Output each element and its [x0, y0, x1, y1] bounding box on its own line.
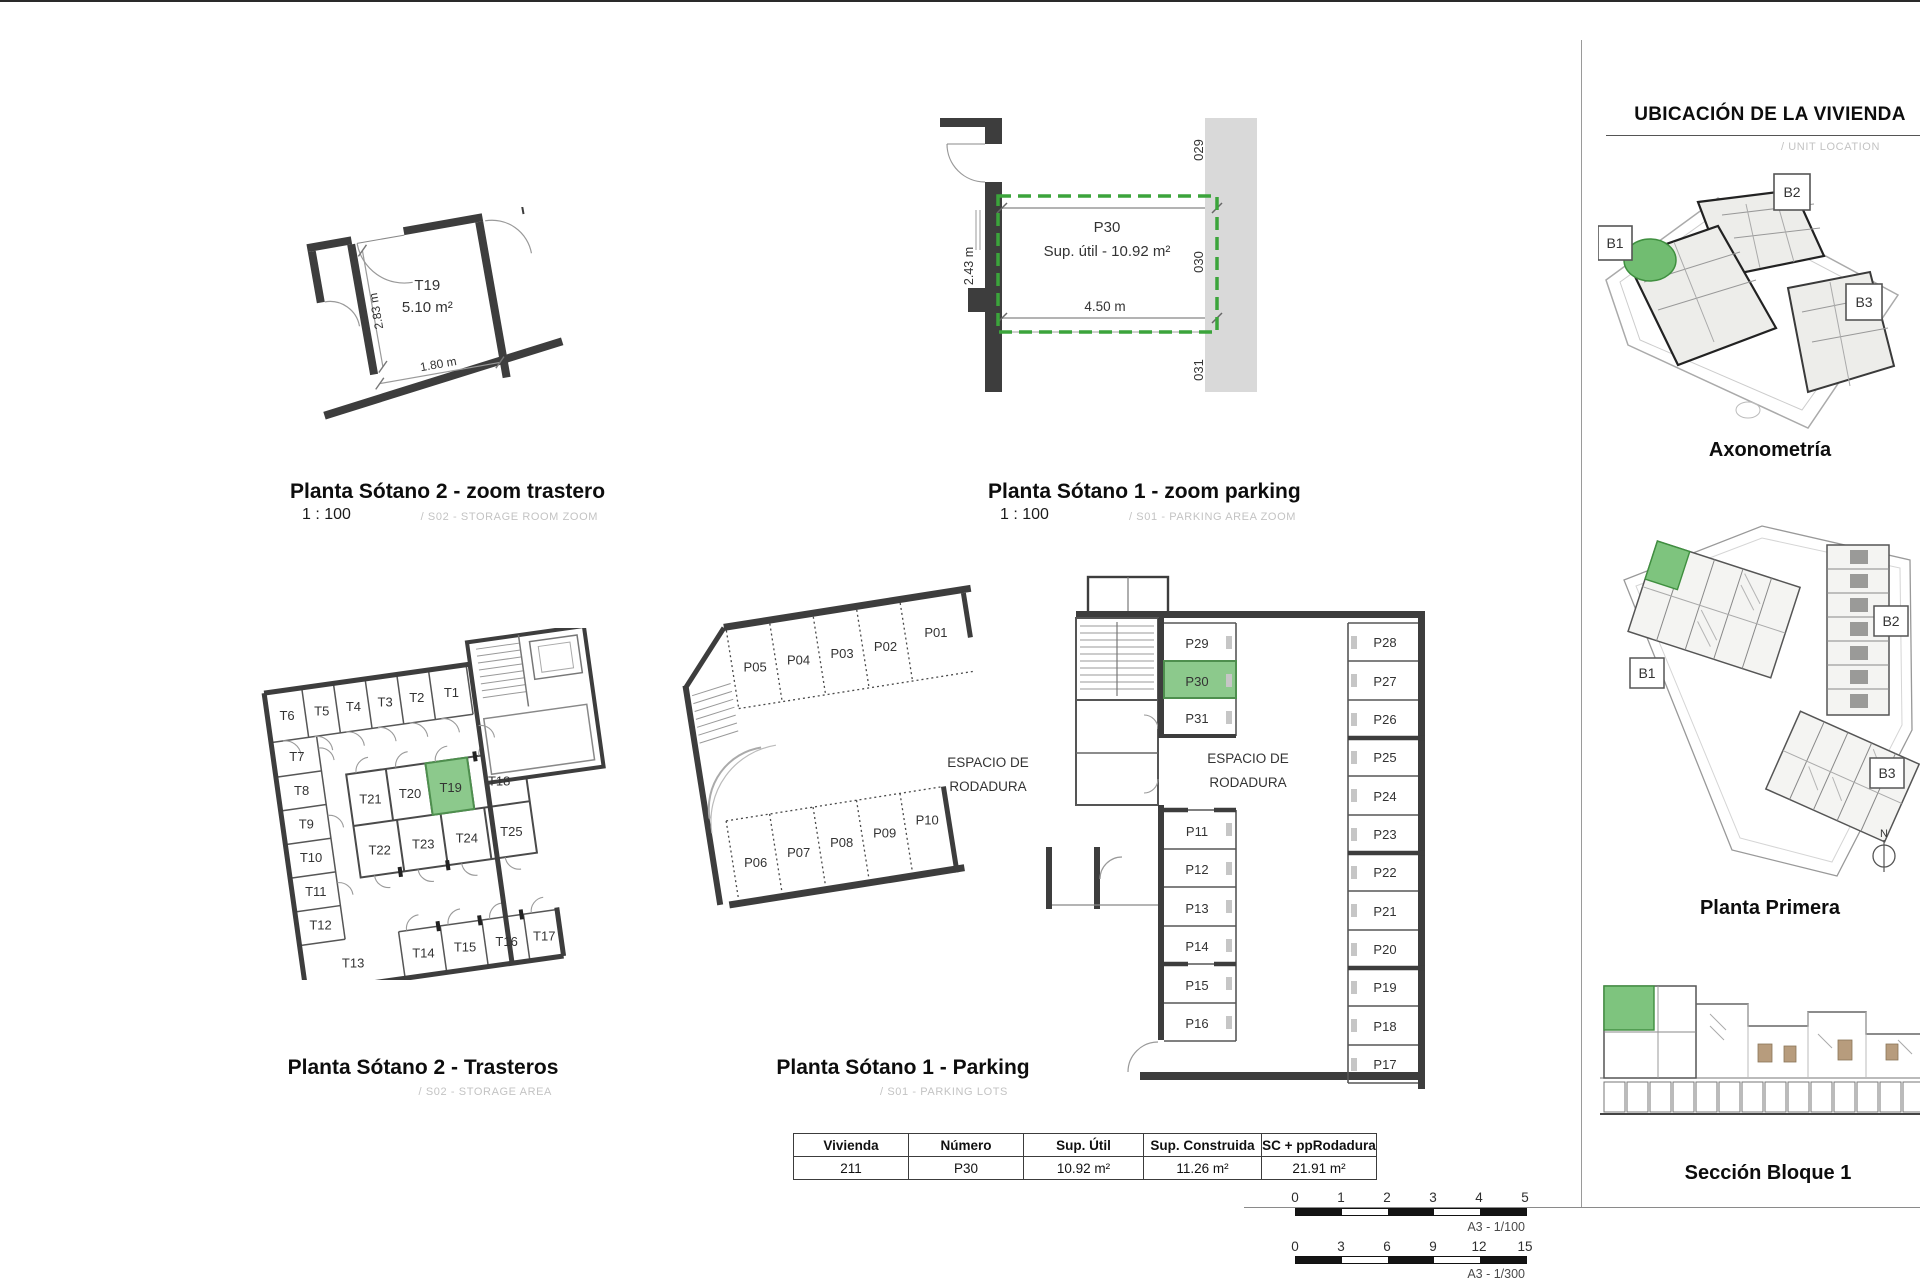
tick: 9	[1429, 1239, 1437, 1254]
storage-floorplan-drawing: T6 T5 T4 T3 T2 T1 T7 T8 T9 T10 T11 T12 T…	[248, 628, 648, 980]
parking-unit-area: Sup. útil - 10.92 m²	[1044, 243, 1171, 260]
section-drawing	[1598, 974, 1920, 1139]
svg-text:P20: P20	[1373, 942, 1396, 957]
svg-text:T11: T11	[305, 884, 326, 899]
header-underline	[1606, 135, 1920, 136]
parking-zoom-subtitle: / S01 - PARKING AREA ZOOM	[1129, 511, 1298, 524]
sidebar-header-sub: / UNIT LOCATION	[1620, 141, 1880, 153]
sidebar-divider	[1581, 40, 1582, 1208]
stair-hatch	[691, 684, 739, 744]
dim-height-label: 2.43 m	[962, 247, 976, 285]
svg-text:P22: P22	[1373, 865, 1396, 880]
svg-text:P01: P01	[924, 625, 947, 640]
svg-text:T12: T12	[309, 918, 331, 933]
col-header: SC + ppRodadura	[1262, 1134, 1377, 1157]
col-header: Número	[909, 1134, 1024, 1157]
storage-floorplan: T6 T5 T4 T3 T2 T1 T7 T8 T9 T10 T11 T12 T…	[261, 628, 629, 980]
roadway-label-left2: RODADURA	[949, 779, 1026, 794]
scalebar-300-ticks: 0 3 6 9 12 15	[1295, 1239, 1535, 1253]
svg-text:P11: P11	[1186, 824, 1208, 839]
tick: 12	[1471, 1239, 1486, 1254]
parking-plan-titleblock: Planta Sótano 1 - Parking / S01 - PARKIN…	[750, 1056, 1056, 1098]
left-bay-labels: P05 P04 P03 P02 P01 P06 P07 P08 P09 P10	[711, 621, 981, 873]
unit-id: T19	[414, 277, 440, 294]
cell-sup-util: 10.92 m²	[1024, 1157, 1144, 1180]
tick: 1	[1337, 1190, 1345, 1205]
roadway-label-left: ESPACIO DE	[947, 755, 1029, 770]
svg-text:T23: T23	[412, 836, 434, 851]
tick: 6	[1383, 1239, 1391, 1254]
svg-text:T3: T3	[378, 694, 393, 709]
svg-text:P12: P12	[1185, 862, 1208, 877]
svg-text:T9: T9	[299, 817, 314, 832]
parking-right-wing: P29 P30 P31 P11 P12 P13 P14 P15 P16 P28 …	[1076, 577, 1425, 1089]
wheel-stops	[1226, 636, 1357, 1071]
svg-text:P29: P29	[1185, 636, 1208, 651]
dim-width-label: 4.50 m	[1084, 299, 1125, 314]
svg-text:P25: P25	[1373, 750, 1396, 765]
band-label: 030	[1191, 251, 1206, 273]
parking-zoom-titleblock: Planta Sótano 1 - zoom parking 1 : 100 /…	[988, 480, 1298, 524]
north-label: N	[1880, 828, 1888, 840]
storage-zoom-drawing: 2.83 m 1.80 m T19 5.10 m²	[300, 207, 630, 482]
highlighted-unit-section	[1604, 986, 1654, 1030]
axonometry-drawing: B1 B2 B3	[1598, 160, 1920, 460]
svg-text:T10: T10	[300, 850, 322, 865]
svg-text:T16: T16	[495, 934, 517, 949]
storage-zoom-title: Planta Sótano 2 - zoom trastero	[290, 480, 600, 504]
svg-text:T19: T19	[439, 780, 461, 795]
scalebar-100	[1295, 1208, 1527, 1216]
parking-plan-subtitle: / S01 - PARKING LOTS	[750, 1086, 1056, 1098]
cell-sup-construida: 11.26 m²	[1144, 1157, 1262, 1180]
svg-text:T22: T22	[368, 843, 390, 858]
scalebar-300	[1295, 1256, 1527, 1264]
parking-floorplan-drawing: P05 P04 P03 P02 P01 P06 P07 P08 P09 P10 …	[648, 547, 1438, 1105]
svg-text:T14: T14	[412, 946, 434, 961]
scalebar-100-ticks: 0 1 2 3 4 5	[1295, 1190, 1535, 1204]
storage-plan-title: Planta Sótano 2 - Trasteros	[268, 1056, 578, 1080]
svg-text:T25: T25	[500, 824, 522, 839]
band-label: 029	[1191, 139, 1206, 161]
svg-text:P31: P31	[1185, 711, 1208, 726]
roadway-label-right: ESPACIO DE	[1207, 751, 1289, 766]
svg-text:P18: P18	[1373, 1019, 1396, 1034]
svg-text:P27: P27	[1373, 674, 1396, 689]
svg-text:T24: T24	[456, 830, 478, 845]
cell-numero: P30	[909, 1157, 1024, 1180]
svg-text:P05: P05	[744, 660, 767, 675]
unit-area: 5.10 m²	[402, 299, 453, 316]
tick: 15	[1517, 1239, 1532, 1254]
table-header-row: Vivienda Número Sup. Útil Sup. Construid…	[794, 1134, 1377, 1157]
svg-text:P16: P16	[1185, 1016, 1208, 1031]
svg-text:T6: T6	[279, 708, 294, 723]
plan-label-b2: B2	[1882, 613, 1899, 629]
svg-text:T4: T4	[346, 699, 361, 714]
svg-text:T2: T2	[409, 690, 424, 705]
first-floor-caption: Planta Primera	[1620, 897, 1920, 920]
parking-zoom-title: Planta Sótano 1 - zoom parking	[988, 480, 1298, 504]
first-floor-drawing: B1 B2 B3 N	[1612, 520, 1920, 888]
storage-zoom-titleblock: Planta Sótano 2 - zoom trastero 1 : 100 …	[290, 480, 600, 524]
tick: 4	[1475, 1190, 1483, 1205]
tick: 0	[1291, 1190, 1299, 1205]
scalebar-300-note: A3 - 1/300	[1295, 1267, 1525, 1281]
block-label-b2: B2	[1783, 184, 1800, 200]
unit-summary-table: Vivienda Número Sup. Útil Sup. Construid…	[793, 1133, 1377, 1180]
svg-text:P21: P21	[1373, 904, 1396, 919]
svg-text:T17: T17	[533, 929, 555, 944]
tick: 5	[1521, 1190, 1529, 1205]
storage-zoom-scale: 1 : 100	[302, 506, 351, 524]
section-caption: Sección Bloque 1	[1618, 1162, 1918, 1185]
svg-text:T1: T1	[444, 685, 459, 700]
tick: 2	[1383, 1190, 1391, 1205]
svg-text:P17: P17	[1373, 1057, 1396, 1072]
svg-text:P15: P15	[1185, 978, 1208, 993]
scalebar-100-note: A3 - 1/100	[1295, 1220, 1525, 1234]
cell-vivienda: 211	[794, 1157, 909, 1180]
tick: 3	[1429, 1190, 1437, 1205]
svg-text:P28: P28	[1373, 635, 1396, 650]
basement-band	[1604, 1082, 1920, 1112]
svg-text:T13: T13	[342, 955, 364, 970]
svg-text:P08: P08	[830, 835, 853, 850]
roadway-label-right2: RODADURA	[1209, 775, 1286, 790]
svg-text:T20: T20	[399, 786, 421, 801]
section-building-profile	[1604, 986, 1920, 1078]
svg-text:P13: P13	[1185, 901, 1208, 916]
cell-sc-rodadura: 21.91 m²	[1262, 1157, 1377, 1180]
svg-text:T21: T21	[359, 791, 381, 806]
svg-text:P04: P04	[787, 653, 810, 668]
svg-text:P02: P02	[874, 639, 897, 654]
block-label-b3: B3	[1855, 294, 1872, 310]
svg-text:P10: P10	[916, 813, 939, 828]
svg-text:P09: P09	[873, 825, 896, 840]
parking-plan-title: Planta Sótano 1 - Parking	[750, 1056, 1056, 1080]
svg-text:P23: P23	[1373, 827, 1396, 842]
svg-text:P14: P14	[1185, 939, 1208, 954]
svg-text:T5: T5	[314, 703, 329, 718]
col-header: Sup. Construida	[1144, 1134, 1262, 1157]
plan-label-b3: B3	[1878, 765, 1895, 781]
tick: 3	[1337, 1239, 1345, 1254]
svg-text:P03: P03	[830, 646, 853, 661]
svg-text:T18: T18	[488, 773, 510, 788]
svg-text:T8: T8	[294, 783, 309, 798]
storage-zoom-plan: 2.83 m 1.80 m T19 5.10 m²	[300, 207, 568, 416]
bay-separators	[697, 593, 1006, 900]
connection-walls	[1046, 847, 1158, 909]
svg-text:P06: P06	[744, 855, 767, 870]
column-band	[1205, 118, 1257, 392]
storage-plan-subtitle: / S02 - STORAGE AREA	[268, 1086, 578, 1098]
svg-text:P07: P07	[787, 845, 810, 860]
svg-text:T15: T15	[454, 940, 476, 955]
band-label: 031	[1191, 359, 1206, 381]
svg-text:P24: P24	[1373, 789, 1396, 804]
plan-label-b1: B1	[1638, 665, 1655, 681]
parking-zoom-drawing: P30 Sup. útil - 10.92 m² 4.50 m 2.43 m 0…	[940, 110, 1280, 402]
col-header: Vivienda	[794, 1134, 909, 1157]
parking-left-wing: P05 P04 P03 P02 P01 P06 P07 P08 P09 P10	[674, 585, 1014, 910]
svg-text:P30: P30	[1185, 674, 1208, 689]
block-label-b1: B1	[1606, 235, 1623, 251]
axonometry-caption: Axonometría	[1620, 439, 1920, 462]
stair-annex	[467, 628, 604, 783]
parking-zoom-scale: 1 : 100	[1000, 506, 1049, 524]
parking-unit-id: P30	[1094, 219, 1121, 236]
svg-text:P26: P26	[1373, 712, 1396, 727]
sidebar-header: UBICACIÓN DE LA VIVIENDA	[1620, 104, 1920, 126]
svg-text:P19: P19	[1373, 980, 1396, 995]
storage-zoom-subtitle: / S02 - STORAGE ROOM ZOOM	[421, 511, 600, 524]
storage-plan-titleblock: Planta Sótano 2 - Trasteros / S02 - STOR…	[268, 1056, 578, 1098]
tick: 0	[1291, 1239, 1299, 1254]
table-row: 211 P30 10.92 m² 11.26 m² 21.91 m²	[794, 1157, 1377, 1180]
col-header: Sup. Útil	[1024, 1134, 1144, 1157]
svg-text:T7: T7	[289, 749, 304, 764]
